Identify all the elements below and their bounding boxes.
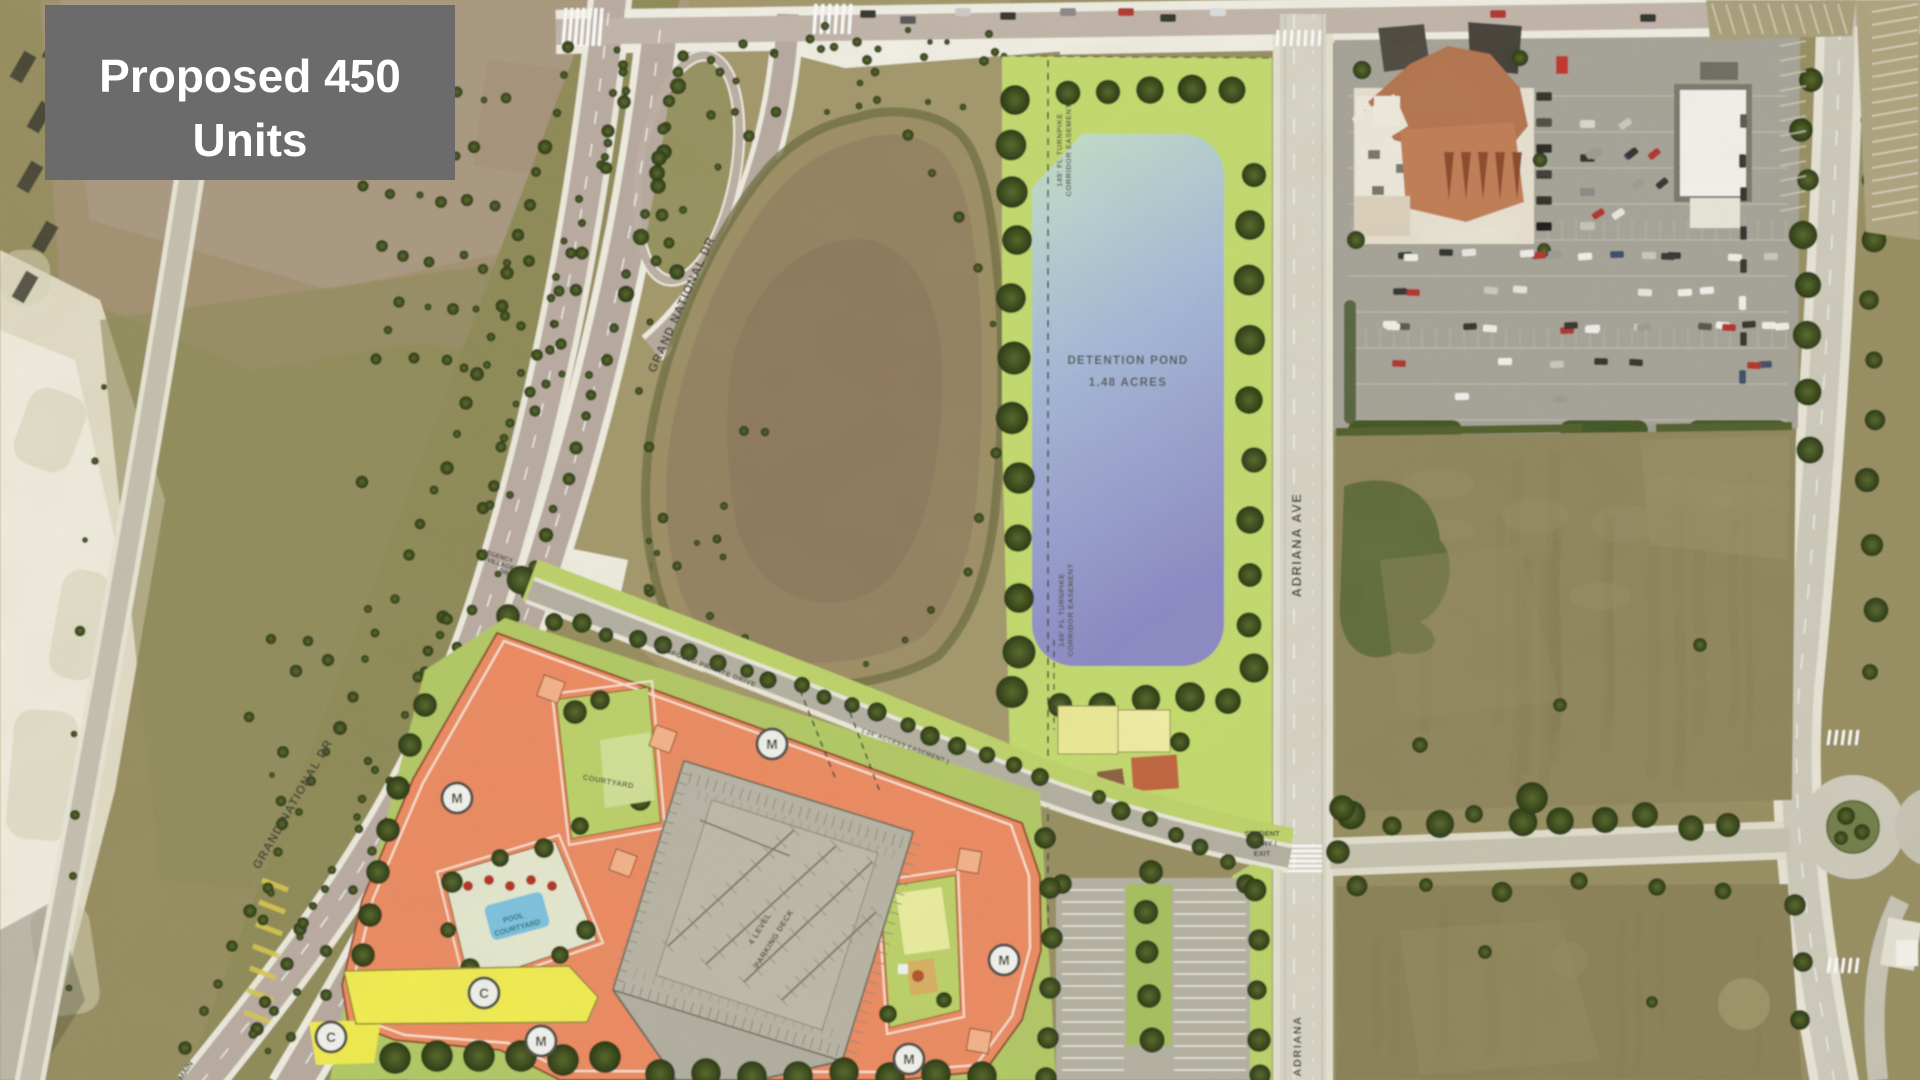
svg-text:Units: Units <box>193 114 308 166</box>
svg-text:Proposed 450: Proposed 450 <box>99 50 401 102</box>
